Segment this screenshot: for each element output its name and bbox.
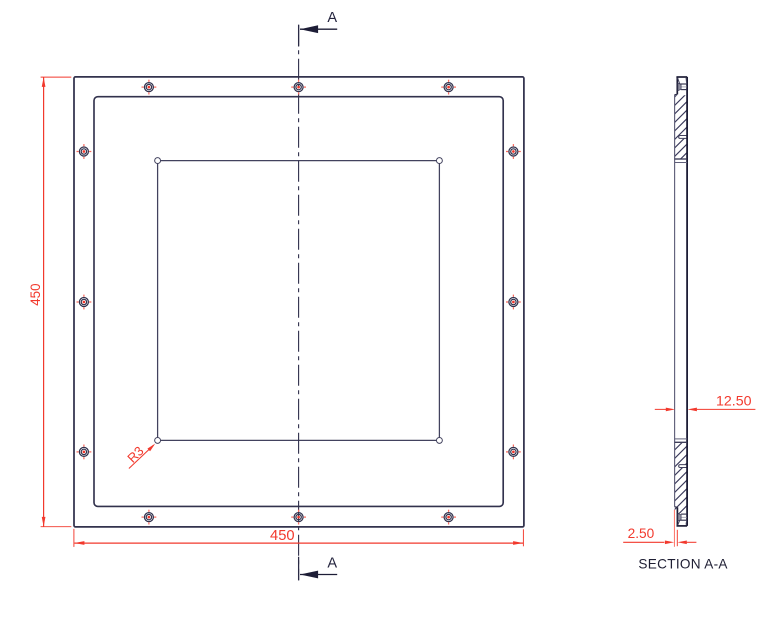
svg-text:SECTION A-A: SECTION A-A xyxy=(638,557,728,572)
svg-text:A: A xyxy=(327,10,337,26)
svg-text:A: A xyxy=(327,555,337,571)
svg-text:450: 450 xyxy=(28,283,43,305)
svg-text:2.50: 2.50 xyxy=(628,526,655,541)
svg-text:450: 450 xyxy=(270,528,295,544)
svg-text:12.50: 12.50 xyxy=(716,393,752,409)
